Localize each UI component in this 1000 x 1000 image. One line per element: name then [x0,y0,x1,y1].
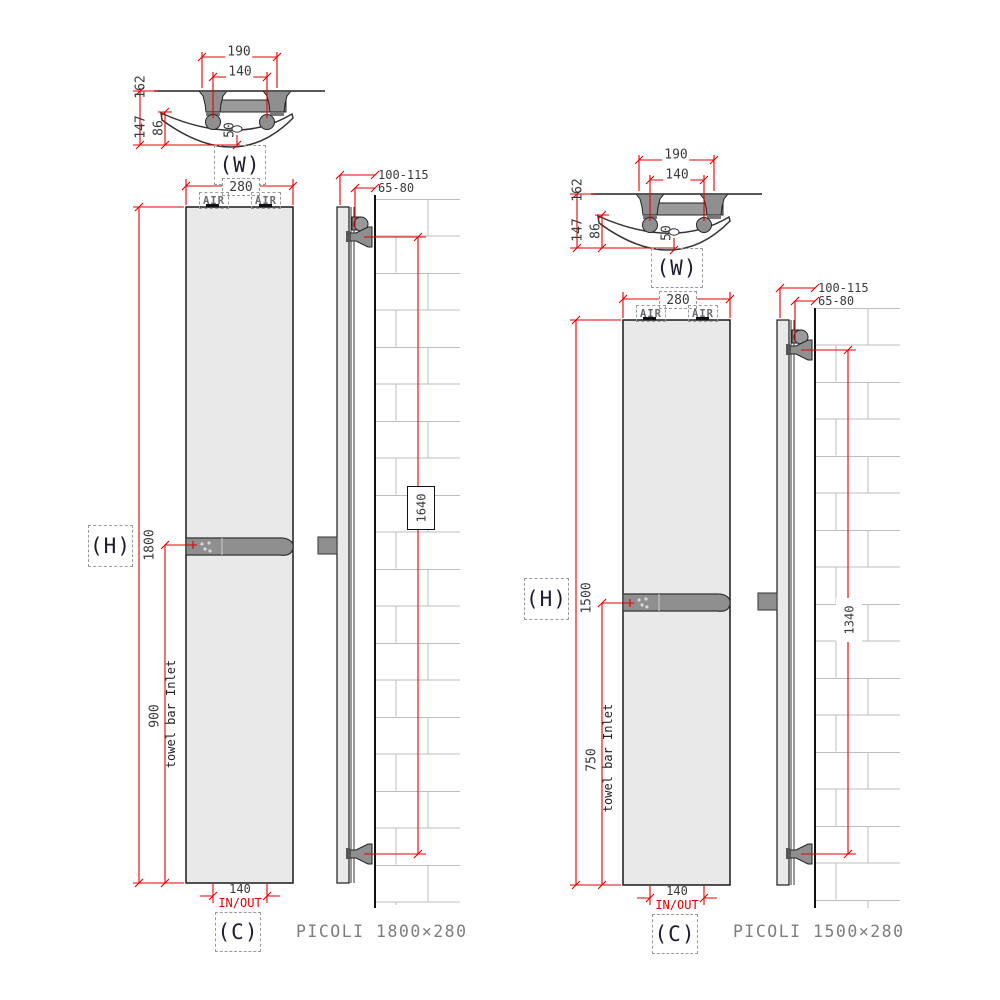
dim-towel-bar-height: 750 [586,746,599,773]
bracket-span-box: 1340 [836,598,862,642]
towel-bar [186,538,293,555]
dim-bracket-distance: 65-80 [378,181,414,195]
height-ref-box: (H) [88,525,133,567]
radiator-panel-side [337,207,349,883]
dim-bracket-distance: 65-80 [818,294,854,308]
towel-bar-note: towel bar Inlet [164,660,178,768]
dim-height: 1500 [581,580,594,615]
dim-depth-total: 162 [134,75,149,98]
drawing-linework [0,0,1000,1000]
dim-pipe-offset: 50 [223,122,238,138]
dim-depth-panel: 86 [589,223,604,239]
dim-depth-panel: 86 [152,120,167,136]
air-label-right: AIR [692,308,714,320]
center-ref-label: (C) [655,922,696,946]
height-ref-label: (H) [90,534,131,558]
left-top-detail-view [154,91,325,147]
dim-wall-distance: 100-115 [818,281,869,295]
radiator-technical-drawing: 190 140 162 147 86 50 (W) 280 AIR AIR (H… [0,0,1000,1000]
right-top-detail-view [591,194,762,250]
dim-width: 280 [666,293,689,308]
dim-pipe-span: 140 [663,169,690,182]
bracket-span-box: 1640 [407,486,435,530]
dim-towel-bar-height: 900 [149,702,162,729]
dim-pipe-offset: 50 [660,225,675,241]
towel-bar-side-section [318,537,337,554]
drawing-caption: PICOLI 1500×280 [733,922,905,941]
height-ref-box: (H) [524,578,569,620]
dim-inout-span: 140 [666,884,688,898]
air-label-right-box: AIR [688,305,718,322]
center-ref-box: (C) [652,914,698,954]
left-front-view [186,204,293,883]
dim-bracket-span-vertical: 1640 [414,494,428,523]
center-ref-label: (C) [218,920,259,944]
towel-bar [623,594,730,611]
air-label-right: AIR [255,195,277,207]
dim-depth-total: 162 [571,178,586,201]
air-label-left-box: AIR [199,192,229,209]
dim-bracket-span: 190 [662,149,689,162]
dim-height: 1800 [144,527,157,562]
left-side-view [318,195,460,908]
height-ref-label: (H) [526,587,567,611]
dim-inout-span: 140 [229,882,251,896]
air-label-left: AIR [203,195,225,207]
dim-wall-distance: 100-115 [378,168,429,182]
dim-width: 280 [229,180,252,195]
dim-depth-wall: 147 [134,115,149,138]
dim-pipe-span: 140 [226,66,253,79]
right-front-view [623,317,730,885]
right-side-view [758,308,900,908]
center-ref-box: (C) [215,912,261,952]
dim-bracket-span-vertical: 1340 [842,606,856,635]
width-ref-box: (W) [651,248,703,288]
drawing-caption: PICOLI 1800×280 [296,922,468,941]
inout-label: IN/OUT [218,896,261,910]
towel-bar-note: towel bar Inlet [601,704,615,812]
inout-label: IN/OUT [655,898,698,912]
air-label-right-box: AIR [251,192,281,209]
towel-bar-side-section [758,593,777,610]
width-ref-label: (W) [657,256,698,280]
air-label-left-box: AIR [636,305,666,322]
width-ref-label: (W) [220,153,261,177]
dim-depth-wall: 147 [571,218,586,241]
air-label-left: AIR [640,308,662,320]
radiator-panel-side [777,320,789,885]
dim-bracket-span: 190 [225,46,252,59]
